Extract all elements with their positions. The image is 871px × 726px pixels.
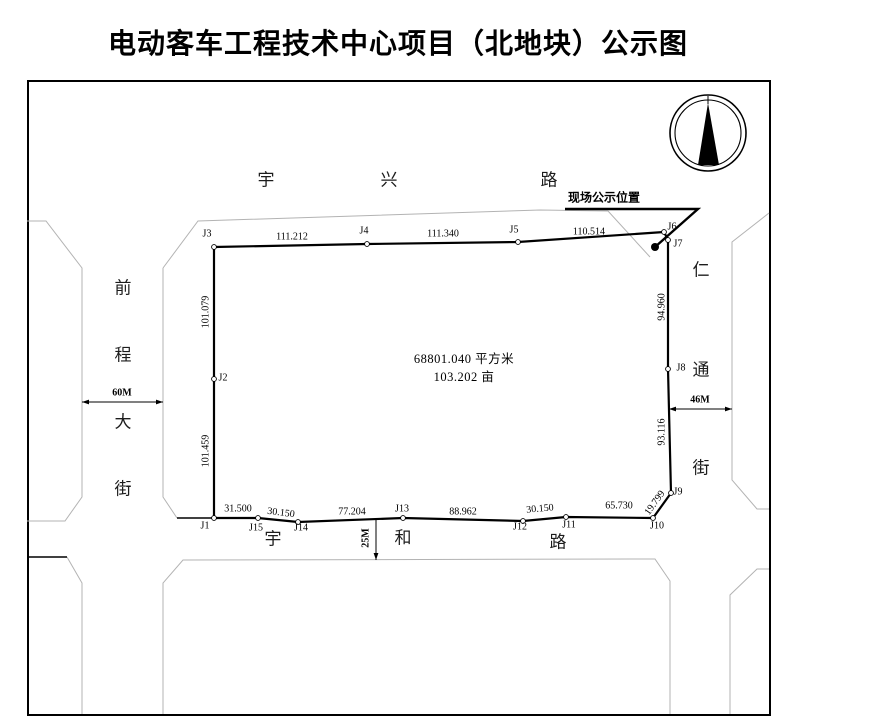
road-width-label: 46M [690,395,709,406]
point-label: J13 [395,504,409,515]
point-label: J8 [677,363,686,374]
street-name-char: 仁 [693,256,710,281]
point-label: J2 [219,373,228,384]
segment-length-label: 111.340 [427,229,459,240]
street-name-char: 宇 [258,166,275,191]
segment-length-label: 30.150 [267,506,296,520]
street-name-char: 街 [693,454,710,479]
point-label: J12 [513,522,527,533]
street-name-char: 路 [550,528,567,553]
point-label: J5 [510,225,519,236]
street-name-char: 和 [395,524,412,549]
point-label: J4 [360,226,369,237]
segment-length-label: 19.799 [642,489,667,518]
segment-length-label: 30.150 [526,502,554,515]
site-notice-location-label: 现场公示位置 [568,189,640,206]
street-name-char: 兴 [381,166,398,191]
street-name-char: 街 [115,475,132,500]
parcel-area-mu: 103.202 亩 [414,368,514,386]
segment-length-label: 110.514 [573,227,605,238]
segment-length-label: 101.459 [201,435,212,468]
segment-length-label: 93.116 [657,418,668,445]
street-name-char: 程 [115,341,132,366]
point-label: J6 [668,222,677,233]
road-width-label: 60M [112,388,131,399]
point-label: J10 [650,521,664,532]
point-label: J11 [562,520,576,531]
point-label: J9 [674,487,683,498]
street-name-char: 路 [541,166,558,191]
point-label: J15 [249,523,263,534]
street-name-char: 宇 [265,525,282,550]
segment-length-label: 65.730 [605,501,633,512]
street-name-char: 通 [693,356,710,381]
segment-length-label: 88.962 [449,507,477,518]
public-notice-drawing: 电动客车工程技术中心项目（北地块）公示图 宇兴路前程大街仁通街宇和路J1J2J3… [0,0,871,726]
street-name-char: 大 [115,408,132,433]
road-width-label: 25M [361,528,372,547]
segment-length-label: 31.500 [224,504,252,515]
point-label: J14 [294,523,308,534]
segment-length-label: 101.079 [201,296,212,329]
segment-length-label: 111.212 [276,232,308,243]
parcel-area-sqm: 68801.040 平方米 [414,350,514,368]
street-name-char: 前 [115,274,132,299]
point-label: J1 [201,521,210,532]
point-label: J3 [203,229,212,240]
segment-length-label: 77.204 [338,507,366,518]
segment-length-label: 94.960 [657,293,668,321]
parcel-area-label: 68801.040 平方米 103.202 亩 [414,350,514,386]
point-label: J7 [674,239,683,250]
